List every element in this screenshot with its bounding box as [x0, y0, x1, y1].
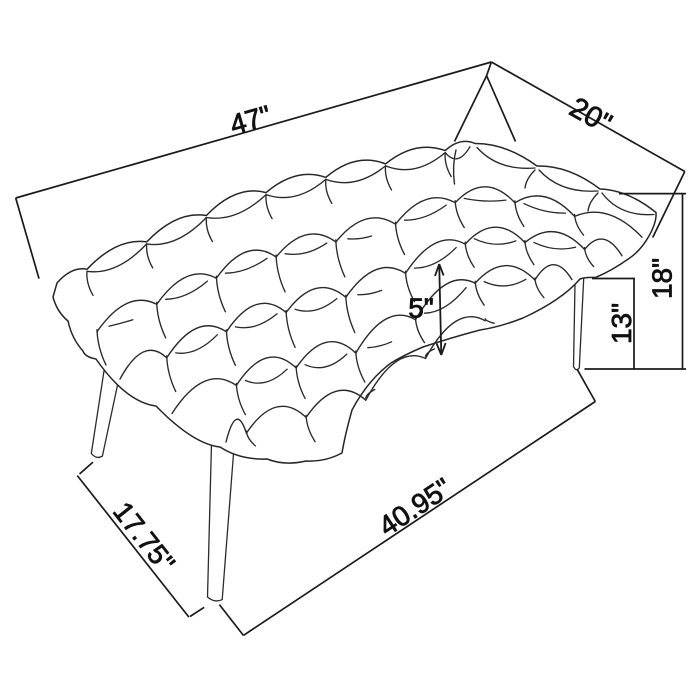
svg-text:13": 13"	[606, 303, 637, 344]
svg-text:18": 18"	[647, 258, 678, 299]
svg-text:5": 5"	[408, 293, 434, 324]
